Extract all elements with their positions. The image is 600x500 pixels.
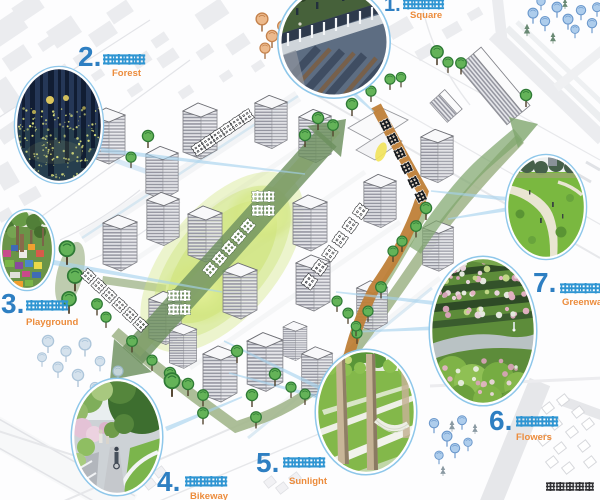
svg-text:Playground: Playground — [26, 317, 78, 328]
svg-text:4.: 4. — [157, 466, 180, 497]
svg-text:6.: 6. — [489, 405, 512, 436]
svg-text:1.: 1. — [384, 0, 401, 16]
svg-text:Flowers: Flowers — [516, 432, 552, 443]
svg-text:Sunlight: Sunlight — [289, 476, 328, 487]
svg-text:7.: 7. — [533, 267, 556, 298]
svg-text:3.: 3. — [1, 288, 24, 319]
svg-text:Forest: Forest — [112, 68, 142, 79]
svg-text:2.: 2. — [78, 41, 101, 72]
svg-text:Bikeway: Bikeway — [190, 491, 229, 500]
svg-text:5.: 5. — [256, 447, 279, 478]
svg-text:Greenway: Greenway — [562, 297, 600, 308]
svg-text:Square: Square — [410, 10, 442, 21]
